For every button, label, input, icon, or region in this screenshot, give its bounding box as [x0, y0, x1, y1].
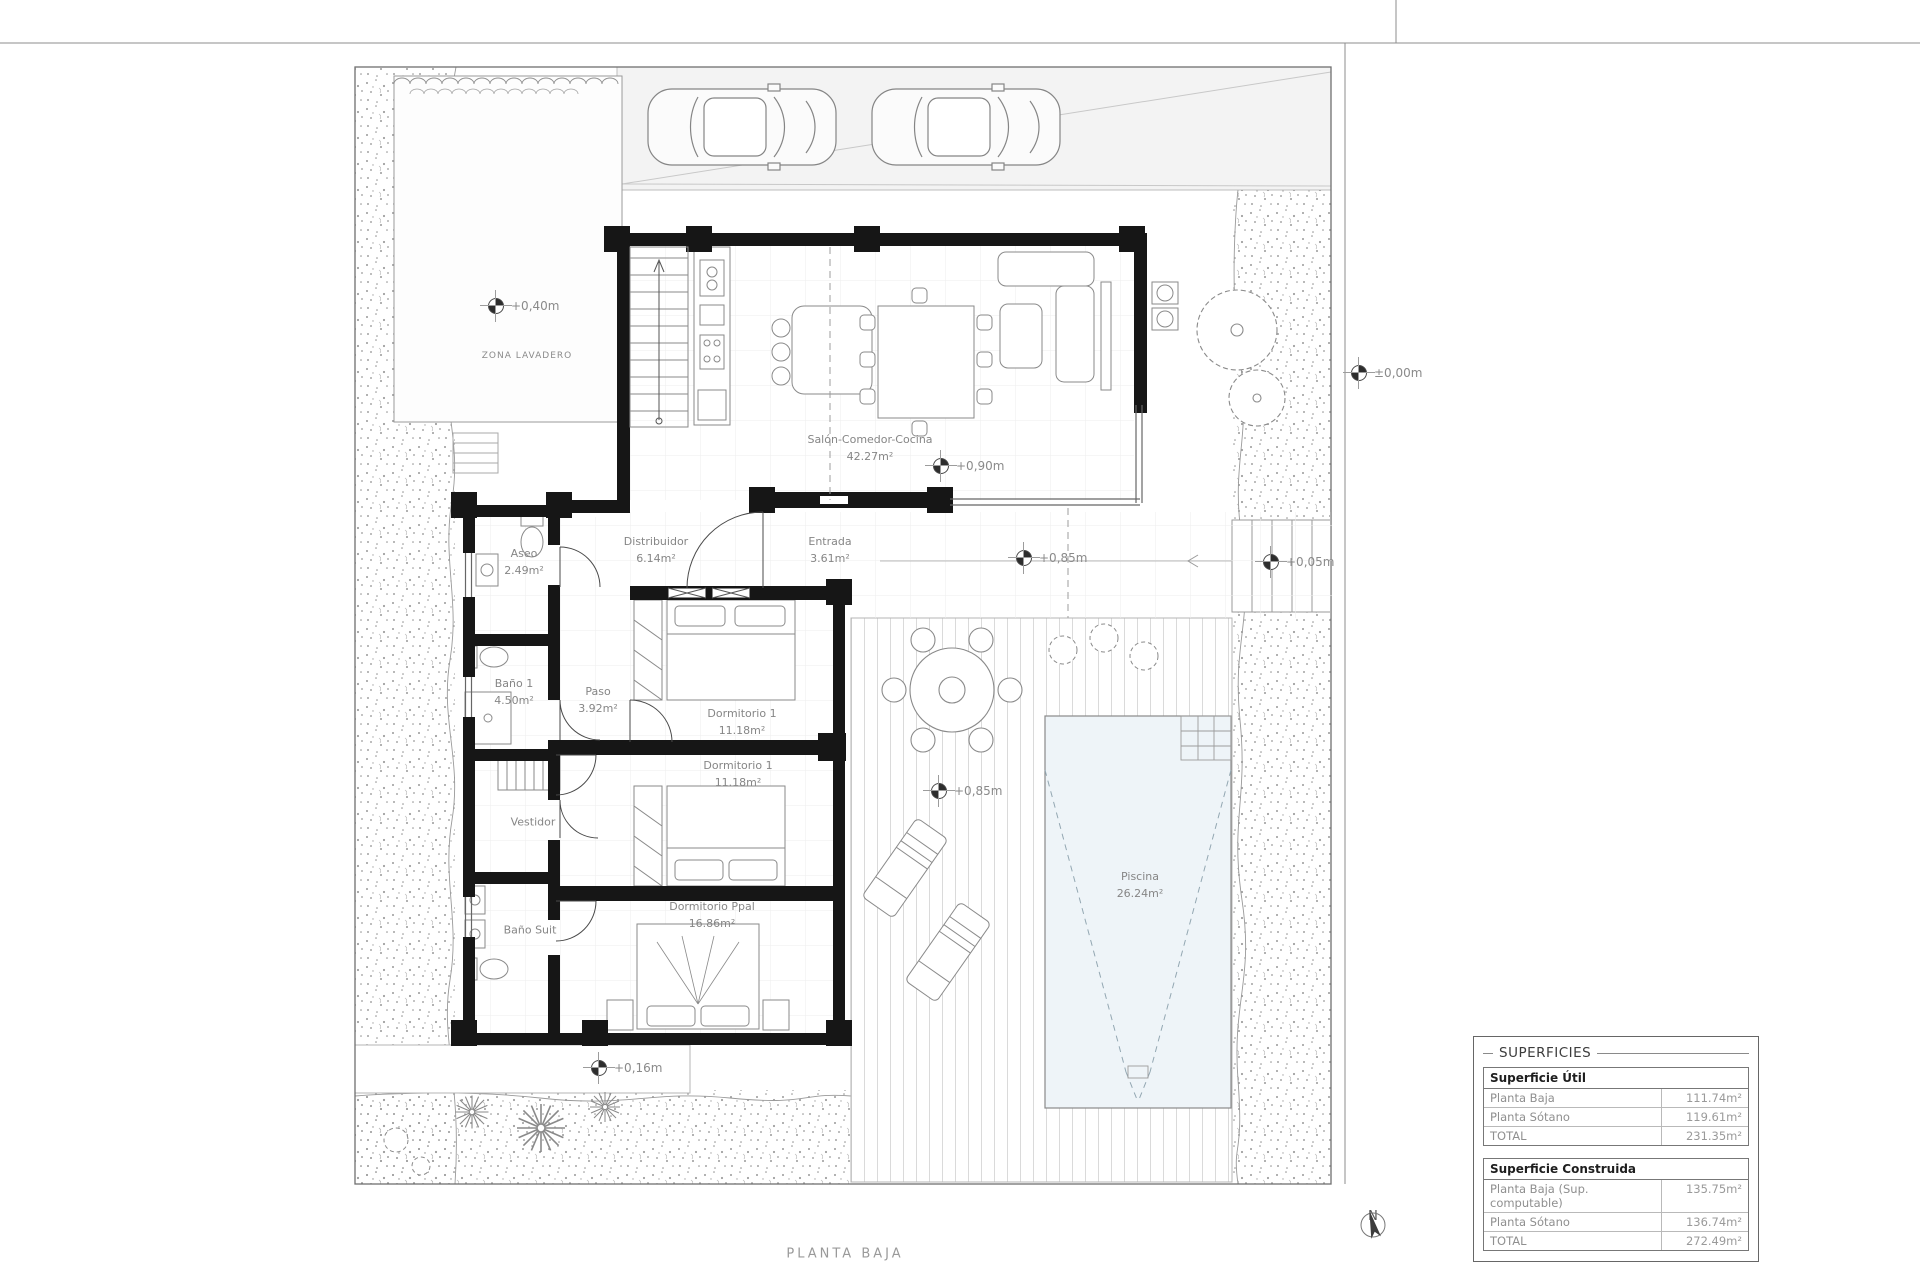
table-row: Planta Sótano 119.61m²: [1484, 1108, 1748, 1127]
level-marker-005: +0,05m: [1263, 554, 1334, 570]
level-icon: [591, 1060, 607, 1076]
level-icon: [1351, 365, 1367, 381]
room-label-salon: Salón-Comedor-Cocina42.27m²: [807, 431, 932, 465]
room-label-dormitorio2: Dormitorio 111.18m²: [703, 757, 772, 791]
table-row: Planta Sótano 136.74m²: [1484, 1213, 1748, 1232]
north-arrow-icon: [1358, 1208, 1388, 1242]
level-icon: [1016, 550, 1032, 566]
room-label-piscina: Piscina26.24m²: [1117, 868, 1164, 902]
table-row: TOTAL 272.49m²: [1484, 1232, 1748, 1250]
room-label-entrada: Entrada3.61m²: [808, 533, 851, 567]
level-marker-000: ±0,00m: [1351, 365, 1422, 381]
zona-lavadero-label: ZONA LAVADERO: [482, 351, 573, 361]
level-icon: [931, 783, 947, 799]
superficies-panel: SUPERFICIES Superficie Útil Planta Baja …: [1473, 1036, 1759, 1262]
room-label-bano1: Baño 14.50m²: [494, 675, 534, 709]
table-row: TOTAL 231.35m²: [1484, 1127, 1748, 1145]
level-icon: [1263, 554, 1279, 570]
superficies-title: SUPERFICIES: [1499, 1045, 1591, 1061]
superficie-construida-table: Superficie Construida Planta Baja (Sup. …: [1483, 1158, 1749, 1251]
superficies-title-row: SUPERFICIES: [1483, 1045, 1749, 1061]
table-row: Planta Baja 111.74m²: [1484, 1089, 1748, 1108]
superficie-util-header: Superficie Útil: [1484, 1068, 1748, 1089]
room-label-distribuidor: Distribuidor6.14m²: [624, 533, 688, 567]
level-marker-016: +0,16m: [591, 1060, 662, 1076]
superficie-util-table: Superficie Útil Planta Baja 111.74m² Pla…: [1483, 1067, 1749, 1146]
room-label-aseo: Aseo2.49m²: [504, 545, 544, 579]
deck-layer: [851, 618, 1232, 1182]
floor-plan-canvas: Salón-Comedor-Cocina42.27m² Distribuidor…: [0, 0, 1920, 1280]
room-label-bano-suit: Baño Suit: [504, 921, 557, 938]
page-title: PLANTA BAJA: [786, 1247, 903, 1262]
level-marker-085-terraza: +0,85m: [1016, 550, 1087, 566]
level-icon: [933, 458, 949, 474]
level-marker-040: +0,40m: [488, 298, 559, 314]
north-arrow: N: [1358, 1208, 1388, 1224]
room-label-dormitorio-ppal: Dormitorio Ppal16.86m²: [669, 898, 755, 932]
superficie-construida-header: Superficie Construida: [1484, 1159, 1748, 1180]
level-icon: [488, 298, 504, 314]
table-row: Planta Baja (Sup. computable) 135.75m²: [1484, 1180, 1748, 1213]
room-label-paso: Paso3.92m²: [578, 683, 618, 717]
level-marker-090: +0,90m: [933, 458, 1004, 474]
room-label-dormitorio1: Dormitorio 111.18m²: [707, 705, 776, 739]
room-label-vestidor: Vestidor: [511, 813, 556, 830]
level-marker-085-deck: +0,85m: [931, 783, 1002, 799]
